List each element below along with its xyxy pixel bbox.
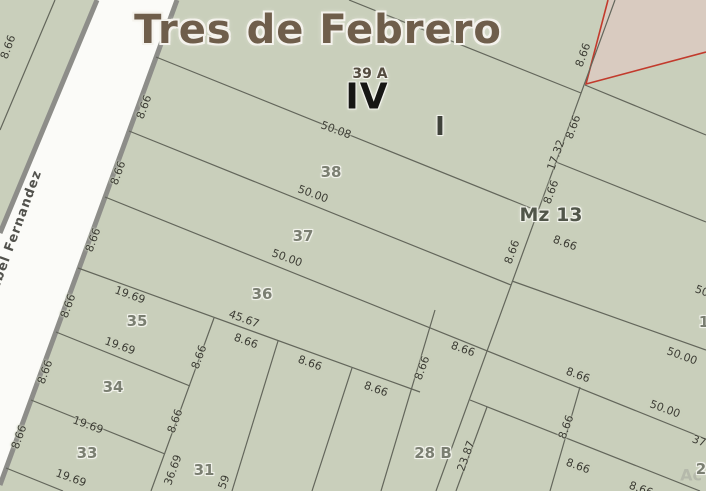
map-title: Tres de Febrero — [134, 7, 502, 53]
dimension-label: 8.66 — [449, 339, 476, 360]
parcel-number-label: 31 — [194, 461, 215, 479]
parcel-number-label: 36 — [252, 285, 273, 303]
zone-label: IV — [345, 77, 388, 118]
dimension-label: 8.66 — [362, 379, 389, 400]
dimension-label: 8.66 — [551, 233, 578, 254]
dimension-label: 8.66 — [563, 113, 584, 140]
dimension-label: 8.66 — [58, 292, 79, 319]
dimension-label: 8.66 — [165, 407, 186, 434]
dimension-label: 8.66 — [232, 331, 259, 352]
zone-label: Mz 13 — [519, 204, 582, 226]
dimension-label: 17.32 — [545, 138, 568, 172]
parcel-number-label: 33 — [77, 444, 98, 462]
dimension-label: 8.66 — [564, 456, 591, 477]
dimension-label: 19.69 — [113, 284, 147, 307]
dimension-label: 8.66 — [412, 354, 433, 381]
parcel-number-label: 37 — [293, 227, 314, 245]
dimension-label: 37 — [690, 432, 706, 449]
parcel-number-label: 38 — [321, 163, 342, 181]
parcel-number-label: 35 — [127, 312, 148, 330]
dimension-label: 23.87 — [455, 439, 478, 473]
dimension-label: 8.66 — [189, 343, 210, 370]
dimension-label: 50.00 — [665, 345, 699, 368]
cadastral-map-canvas[interactable]: Tres de Febrero Isabel Fernandez Ac 39 A… — [0, 0, 706, 491]
dimension-label: 8.66 — [83, 226, 104, 253]
parcel-number-label: 1 — [699, 313, 706, 331]
dimension-label: 19.69 — [71, 414, 105, 437]
dimension-label: 45.67 — [227, 308, 261, 331]
parcel-number-label: 34 — [103, 378, 124, 396]
dimension-label: 50.00 — [270, 247, 304, 270]
dimension-label: 8.66 — [573, 41, 594, 68]
dimension-label: 50.00 — [296, 183, 330, 206]
dimension-label: 36.69 — [162, 453, 185, 487]
dimension-label: 19.69 — [103, 335, 137, 358]
dimension-label: 8.66 — [0, 33, 18, 60]
dimension-label: 8.66 — [9, 423, 30, 450]
dimension-label: 50.00 — [648, 398, 682, 421]
dimension-label: 59 — [215, 473, 232, 491]
dimension-label: 8.66 — [541, 178, 562, 205]
dimension-label: 8.66 — [296, 353, 323, 374]
dimension-label: 8.66 — [556, 413, 577, 440]
dimension-label: 50 — [693, 282, 706, 299]
parcel-number-label: 2 — [696, 460, 706, 478]
dimension-label: 8.66 — [502, 238, 523, 265]
map-labels-layer: Tres de Febrero Isabel Fernandez Ac 39 A… — [0, 0, 706, 491]
zone-label: I — [435, 112, 445, 142]
dimension-label: 8.66 — [108, 159, 129, 186]
dimension-label: 8.66 — [564, 365, 591, 386]
dimension-label: 50.08 — [319, 119, 353, 142]
parcel-number-label: 28 B — [414, 444, 452, 462]
street-name-label: Isabel Fernandez — [0, 168, 45, 306]
dimension-label: 8.66 — [35, 358, 56, 385]
dimension-label: 19.69 — [54, 467, 88, 490]
dimension-label: 8.66 — [627, 479, 654, 491]
dimension-label: 8.66 — [134, 93, 155, 120]
